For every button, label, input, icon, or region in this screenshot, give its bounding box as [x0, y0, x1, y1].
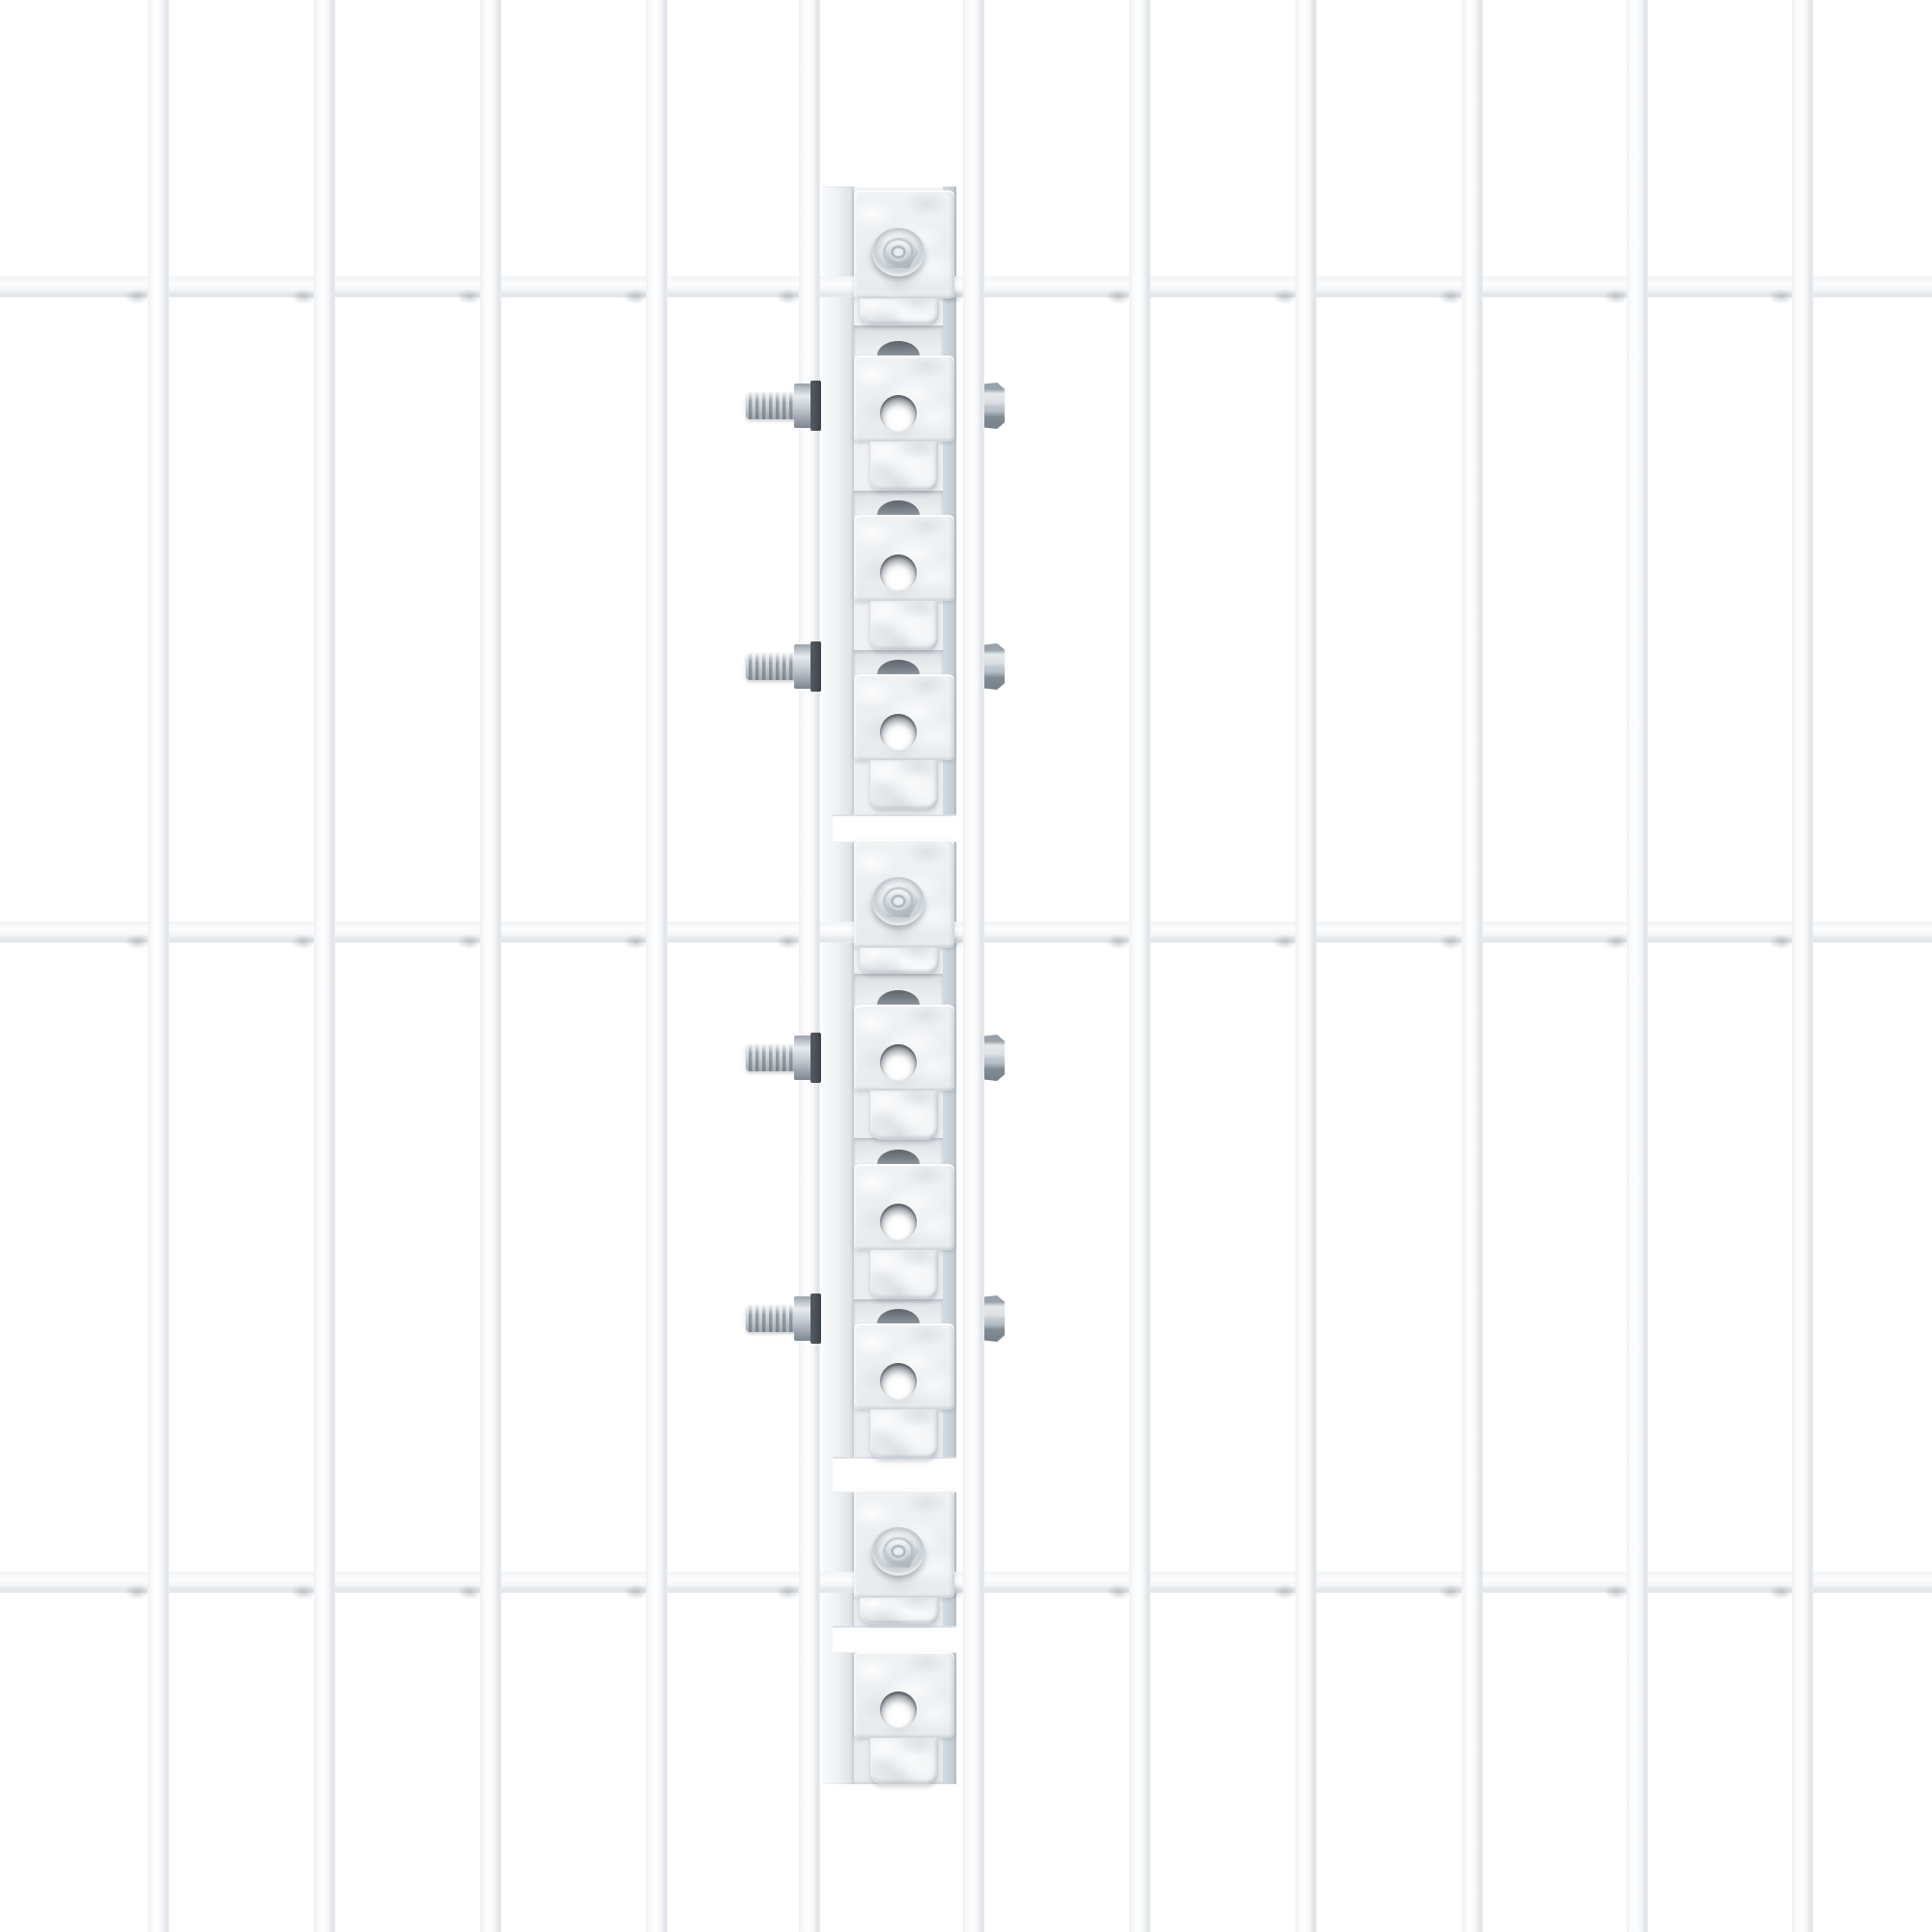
fence-vertical-wire: [1462, 0, 1483, 1932]
clamp-plate: [854, 1490, 954, 1624]
clamp-plate: [854, 515, 954, 650]
clamp-plate: [854, 839, 954, 974]
clamp-plate-tab: [870, 601, 938, 650]
threaded-bolt-end: [746, 1044, 798, 1071]
fence-vertical-wire: [963, 0, 984, 1932]
strip-gap-band: [854, 491, 943, 515]
strip-cutout: [833, 1457, 956, 1492]
clamp-plate: [854, 1652, 954, 1784]
strip-cutout: [833, 814, 956, 842]
strip-gap-band: [854, 974, 943, 1005]
clamp-washer-edge: [810, 381, 821, 431]
plate-hole: [880, 1204, 917, 1240]
fence-vertical-wire: [1295, 0, 1317, 1932]
bolt-flange-nut: [794, 644, 811, 689]
clamp-plate-tab: [860, 1598, 939, 1624]
bolt-flange-nut: [794, 384, 811, 428]
clamp-washer-edge: [810, 1033, 821, 1083]
clamp-plate: [854, 190, 954, 325]
clamp-plate-tab: [870, 1250, 938, 1299]
plate-hole: [880, 1363, 917, 1400]
bolt-flange-nut: [794, 1036, 811, 1080]
clamp-plate-tab: [860, 948, 939, 974]
plate-hole: [880, 714, 917, 751]
clamp-plate: [854, 1005, 954, 1140]
fence-vertical-wire: [646, 0, 668, 1932]
fence-vertical-wire: [314, 0, 335, 1932]
clamp-plate-tab: [870, 1091, 938, 1140]
hex-bolt-ring: [891, 895, 906, 908]
fence-vertical-wire: [480, 0, 501, 1932]
clamp-washer-edge: [810, 641, 821, 692]
fence-vertical-wire: [1129, 0, 1151, 1932]
threaded-bolt-end: [746, 392, 798, 419]
clamp-plate: [854, 1323, 954, 1459]
fence-vertical-wire: [148, 0, 169, 1932]
threaded-bolt-end: [746, 1305, 798, 1332]
bolt-flange-nut: [794, 1296, 811, 1341]
hex-bolt-ring: [891, 1545, 906, 1558]
strip-hole-arc: [877, 500, 920, 515]
fence-vertical-wire: [799, 0, 820, 1932]
strip-hole-arc: [877, 660, 920, 674]
clamp-plate: [854, 355, 954, 491]
plate-hole: [880, 1044, 917, 1081]
clamp-plate-tab: [870, 760, 938, 810]
clamp-washer-edge: [810, 1293, 821, 1344]
product-image-fence-bracket: [0, 0, 1932, 1932]
clamp-plate: [854, 1164, 954, 1299]
strip-hole-arc: [877, 341, 920, 355]
plate-hole: [880, 395, 917, 432]
strip-hole-arc: [877, 1150, 920, 1164]
strip-left-flange: [823, 186, 854, 1784]
strip-gap-band: [854, 1299, 943, 1323]
clamp-plate-tab: [860, 298, 939, 325]
strip-hole-arc: [877, 990, 920, 1005]
fence-vertical-wire: [1627, 0, 1648, 1932]
clamp-plate-tab: [870, 441, 938, 491]
clamp-plate: [854, 674, 954, 810]
plate-hole: [880, 1691, 917, 1728]
strip-gap-band: [854, 326, 943, 355]
threaded-bolt-end: [746, 653, 798, 680]
clamp-plate-tab: [870, 1409, 938, 1459]
strip-gap-band: [854, 650, 943, 674]
fence-vertical-wire: [1792, 0, 1813, 1932]
plate-hole: [880, 554, 917, 591]
hex-bolt-ring: [891, 245, 906, 259]
clamp-plate-tab: [870, 1738, 938, 1784]
strip-hole-arc: [877, 1309, 920, 1323]
strip-gap-band: [854, 1138, 943, 1164]
strip-cutout: [833, 1626, 956, 1653]
